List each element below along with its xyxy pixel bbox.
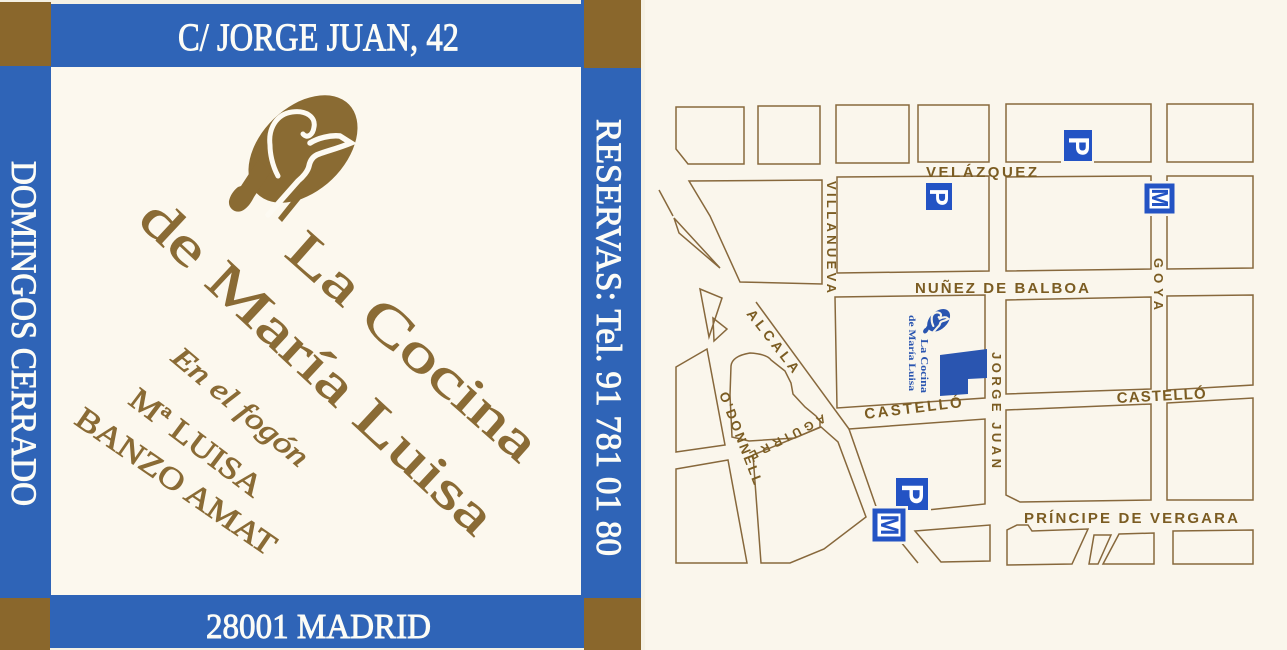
svg-text:28001 MADRID: 28001 MADRID	[206, 607, 431, 646]
svg-text:VELÁZQUEZ: VELÁZQUEZ	[926, 164, 1037, 181]
svg-text:P: P	[924, 188, 954, 205]
svg-text:P: P	[1062, 136, 1094, 155]
svg-text:M: M	[1147, 188, 1173, 207]
svg-text:de María Luisa: de María Luisa	[906, 315, 916, 391]
svg-text:JORGE JUAN: JORGE JUAN	[989, 352, 1004, 468]
svg-text:La Cocina: La Cocina	[918, 339, 929, 394]
svg-text:M: M	[875, 515, 903, 536]
svg-text:DOMINGOS CERRADO: DOMINGOS CERRADO	[4, 161, 44, 506]
svg-text:RESERVAS: Tel. 91 781 01 80: RESERVAS: Tel. 91 781 01 80	[589, 119, 629, 556]
svg-text:PRÍNCIPE DE VERGARA: PRÍNCIPE DE VERGARA	[1024, 510, 1238, 527]
svg-text:P: P	[895, 484, 930, 505]
svg-text:C/ JORGE JUAN, 42: C/ JORGE JUAN, 42	[178, 16, 459, 59]
